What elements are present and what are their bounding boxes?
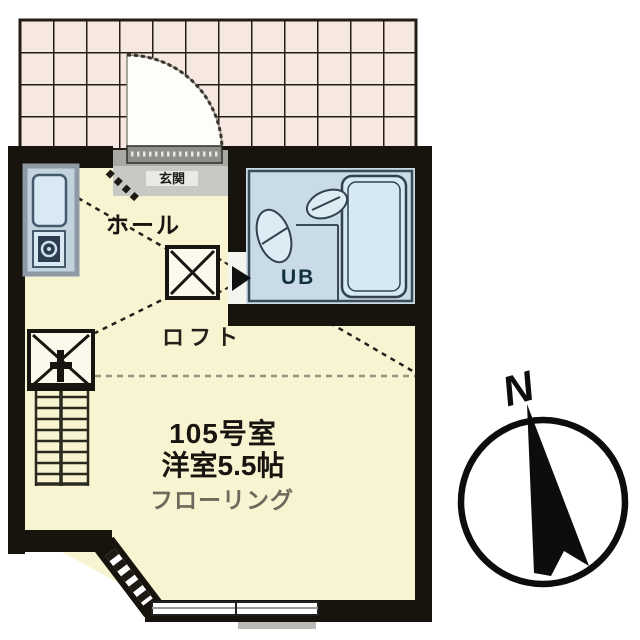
unit-bath-label: UB [281,267,315,288]
floor-plan: ホール ロフト 105号室 洋室5.5帖 フローリング 玄関 UB N [0,0,640,640]
room-type-label: 洋室5.5帖 [118,452,328,480]
porch-step [238,622,316,629]
stair-top-edge [29,383,93,391]
kitchen-sink [33,175,66,226]
hall-label: ホール [106,214,181,237]
ub-wall-bottom [228,304,432,326]
stove-burner-dot [47,247,51,251]
wall-bottom-left [8,530,112,552]
flooring-label: フローリング [122,489,322,512]
floor-plan-canvas [0,0,640,640]
room-number-label: 105号室 [128,420,318,448]
stair-landing-mark-v [57,350,64,382]
wall-left [8,146,25,554]
wall-right [415,146,432,622]
bathtub [342,176,406,297]
entrance-label: 玄関 [146,171,198,186]
loft-label: ロフト [162,327,243,349]
wall-top-right [222,146,432,168]
